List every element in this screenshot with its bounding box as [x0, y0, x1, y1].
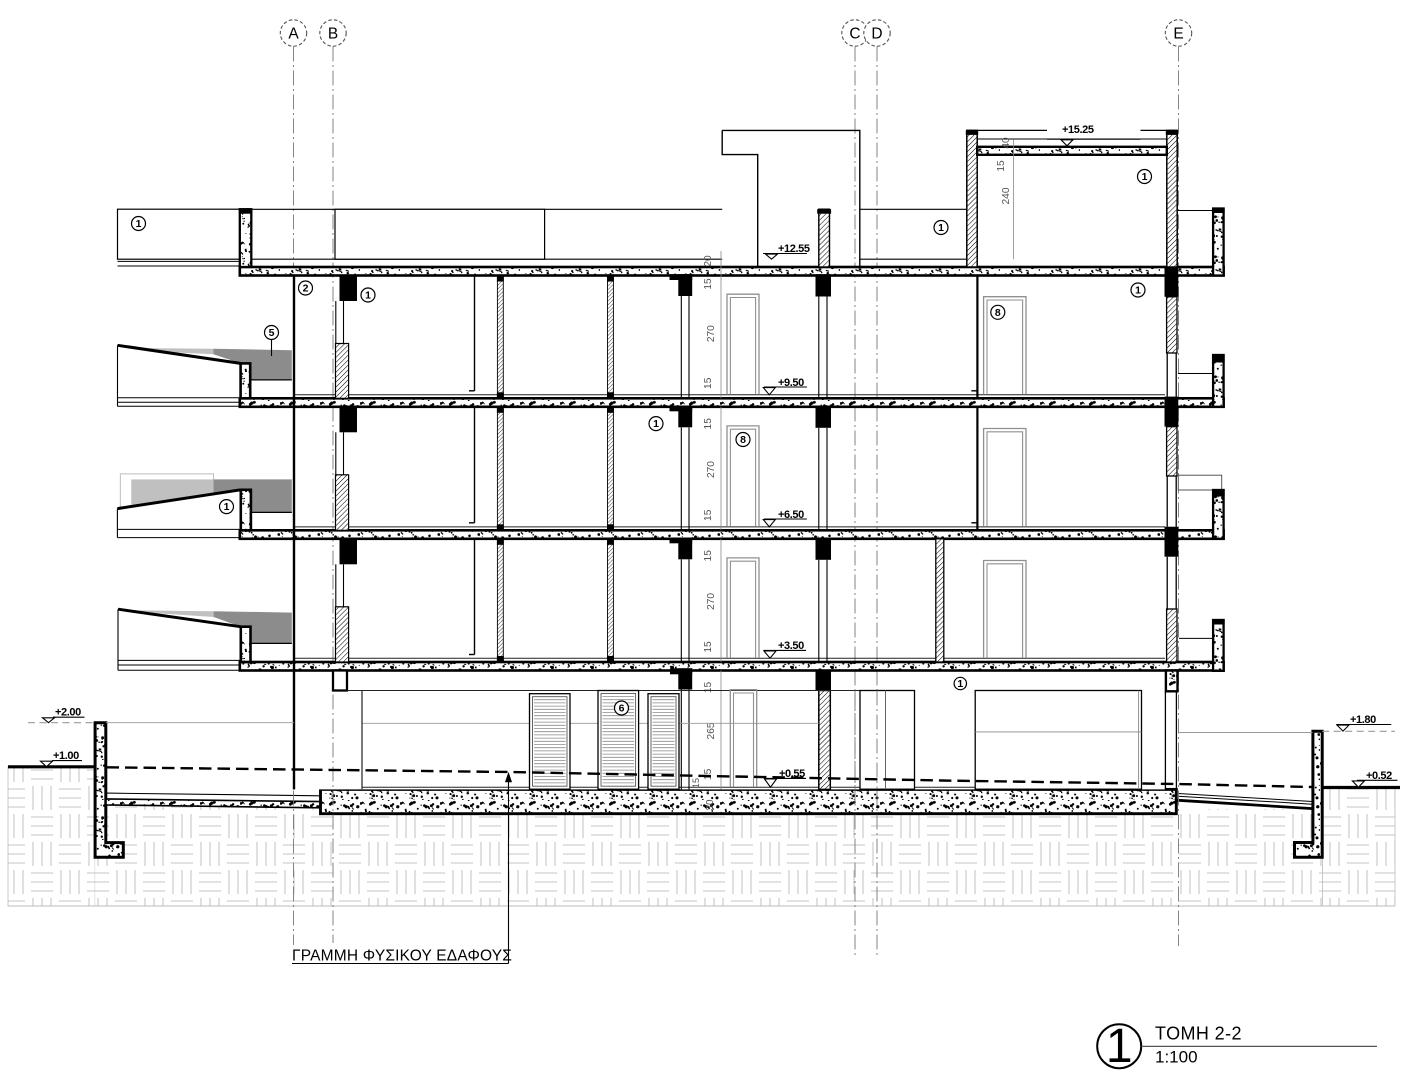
svg-text:265: 265 — [706, 722, 717, 739]
svg-text:+1.00: +1.00 — [53, 750, 79, 762]
svg-text:15: 15 — [703, 509, 714, 521]
svg-text:5: 5 — [269, 327, 275, 339]
svg-text:1: 1 — [957, 678, 963, 690]
svg-text:15: 15 — [703, 278, 714, 290]
svg-text:8: 8 — [995, 307, 1001, 319]
svg-text:270: 270 — [706, 461, 717, 478]
svg-text:40: 40 — [1001, 137, 1012, 149]
svg-text:15: 15 — [691, 778, 701, 788]
svg-text:15: 15 — [703, 550, 714, 562]
svg-text:1: 1 — [938, 222, 944, 234]
svg-text:1: 1 — [1135, 285, 1141, 297]
svg-text:B: B — [328, 26, 338, 43]
svg-text:15: 15 — [703, 641, 714, 653]
svg-text:+15.25: +15.25 — [1062, 124, 1094, 136]
svg-text:2: 2 — [303, 283, 309, 295]
svg-text:E: E — [1173, 26, 1183, 43]
svg-text:8: 8 — [740, 434, 746, 446]
svg-text:20: 20 — [703, 255, 714, 267]
svg-text:15: 15 — [703, 768, 714, 780]
svg-text:15: 15 — [703, 682, 714, 694]
svg-text:C: C — [849, 26, 860, 43]
svg-text:1: 1 — [224, 501, 230, 513]
svg-text:6: 6 — [619, 703, 625, 715]
svg-text:1: 1 — [1106, 1020, 1133, 1073]
svg-text:1: 1 — [1142, 171, 1148, 183]
svg-text:15: 15 — [703, 418, 714, 430]
svg-text:15: 15 — [996, 160, 1007, 172]
svg-text:+2.00: +2.00 — [55, 706, 81, 718]
svg-text:270: 270 — [706, 325, 717, 342]
svg-text:1: 1 — [365, 290, 371, 302]
svg-text:270: 270 — [706, 593, 717, 610]
svg-text:ΓΡΑΜΜΗ ΦΥΣΙΚΟΥ ΕΔΑΦΟΥΣ: ΓΡΑΜΜΗ ΦΥΣΙΚΟΥ ΕΔΑΦΟΥΣ — [292, 948, 512, 965]
svg-text:1:100: 1:100 — [1155, 1048, 1198, 1067]
svg-text:30: 30 — [705, 799, 716, 811]
svg-text:240: 240 — [1001, 187, 1012, 204]
svg-text:A: A — [288, 26, 299, 43]
svg-text:15: 15 — [703, 377, 714, 389]
svg-text:D: D — [871, 26, 882, 43]
svg-text:1: 1 — [653, 418, 659, 430]
svg-text:ΤΟΜΗ 2-2: ΤΟΜΗ 2-2 — [1155, 1024, 1242, 1044]
svg-text:1: 1 — [136, 218, 142, 230]
